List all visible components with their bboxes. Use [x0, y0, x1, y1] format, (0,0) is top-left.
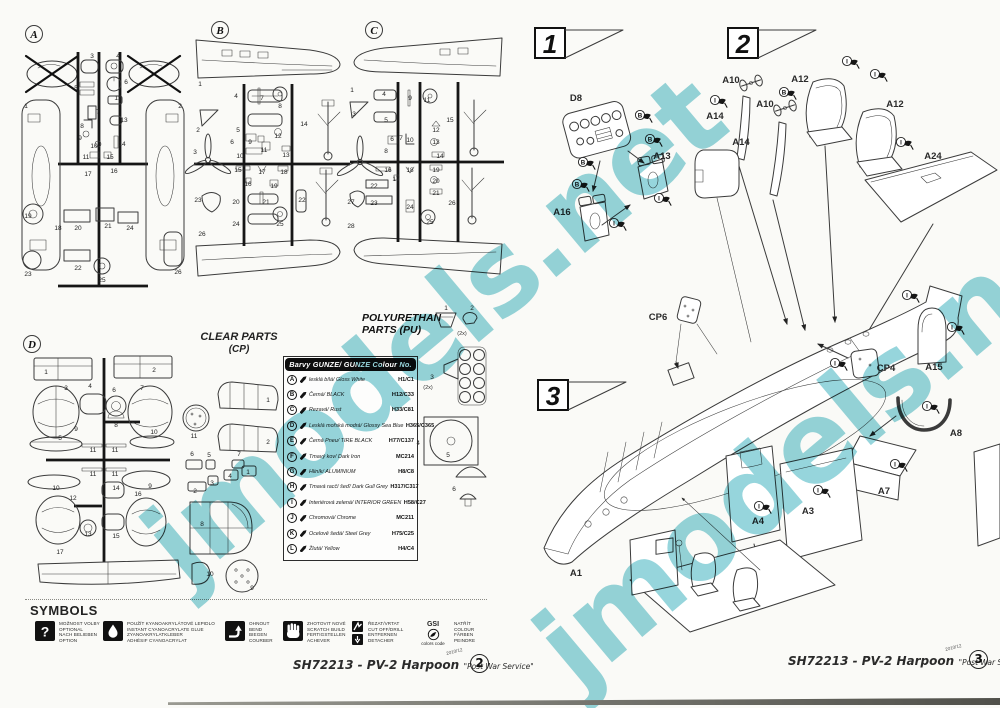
brush-icon: [300, 438, 307, 445]
brush-icon: [300, 469, 307, 476]
color-letter-badge: H: [287, 482, 297, 492]
part-number: 24: [232, 221, 240, 228]
sprue-b-diagram: B: [192, 14, 352, 314]
paint-letter: B: [782, 89, 787, 96]
part-number: 25: [98, 277, 106, 284]
paint-callout: B: [635, 110, 652, 122]
color-row: HTmavá racčí šeď/ Dark Gull GreyH317/C31…: [284, 480, 417, 495]
part-label: A13: [653, 151, 670, 162]
wing-lower: [354, 238, 502, 274]
panel-edge: [974, 444, 1000, 546]
color-row: IInteriérová zelená/ INTERIOR GREENH58/C…: [284, 495, 417, 510]
paint-callout: B: [645, 134, 662, 146]
part-number: 2: [152, 367, 156, 374]
symbol-text: ŘEZAT/VRTATCUT OFF/DRILLENTFERNENDETACHE…: [368, 621, 403, 643]
part-number: 3: [193, 149, 197, 156]
part-number: 17: [56, 549, 64, 556]
part-number: 11: [424, 97, 431, 104]
paint-letter: I: [906, 292, 908, 299]
symbols-title: SYMBOLS: [30, 603, 98, 618]
color-letter-badge: B: [287, 390, 297, 400]
part-number: 6: [112, 387, 116, 394]
part-number: 10: [90, 143, 98, 150]
brush-icon: [300, 499, 307, 506]
sprue-runner: [194, 84, 350, 246]
part-label: A10: [756, 99, 773, 110]
part-number: 19: [432, 167, 440, 174]
cut-icon: [352, 621, 364, 647]
paint-letter: I: [613, 220, 615, 227]
wing-upper: [196, 40, 340, 78]
part-number: 1: [350, 87, 354, 94]
part-number: 3: [90, 53, 94, 60]
paint-callout: B: [572, 179, 589, 191]
color-code: H12/C33: [392, 392, 414, 398]
part-number: 26: [198, 231, 206, 238]
part-number: 12: [274, 133, 282, 140]
sprue-letter: C: [370, 25, 378, 37]
gunze-color-table: Barvy GUNZE/ GUNZE Colour No. Alesklá bí…: [283, 356, 418, 561]
color-code: H1/C1: [398, 377, 414, 383]
paint-letter: I: [658, 195, 660, 202]
color-name: Černá Pneu/ TIRE BLACK: [309, 438, 386, 444]
part-label: A4: [752, 516, 765, 527]
part-number: 25: [276, 221, 284, 228]
kit-code: SH72213 - PV-2 Harpoon: [788, 654, 954, 668]
pilot-seat: [856, 109, 902, 176]
part-number: 8: [278, 103, 282, 110]
paint-letter: B: [638, 112, 643, 119]
page-number: 2: [470, 654, 489, 673]
color-letter-badge: D: [287, 421, 297, 431]
part-number: 1: [24, 103, 28, 110]
color-name: Černá/ BLACK: [309, 392, 389, 398]
sprue-letter: D: [27, 339, 36, 351]
color-code: MC214: [396, 454, 414, 460]
part-number: 4: [382, 91, 386, 98]
part-number: 2: [266, 439, 270, 446]
part-number: 13: [84, 531, 92, 538]
sprue-letter: A: [29, 29, 37, 41]
part-number: 11: [83, 154, 90, 161]
paint-letter: I: [926, 403, 928, 410]
symbol-text: POUŽÍT KYANOAKRYLÁTOVÉ LEPIDLOINSTANT CY…: [127, 621, 215, 643]
rudder-pedal-bracket: [578, 194, 609, 241]
clear-parts-shapes: [183, 382, 278, 592]
symbol-text: NATŘÍTCOLOURFÄRBENPEINDRE: [454, 621, 475, 643]
part-number: 11: [191, 433, 198, 440]
color-name: lesklá bílá/ Gloss White: [309, 377, 396, 383]
color-name: Tmavá racčí šeď/ Dark Gull Grey: [309, 484, 388, 490]
part-number: 11: [90, 447, 97, 454]
control-yoke: [738, 74, 763, 92]
color-table-header: Barvy GUNZE/ GUNZE Colour No.: [285, 358, 416, 371]
clear-parts-diagram: 111265723418109: [180, 352, 295, 602]
page-number: 3: [969, 650, 988, 669]
fuselage-half: [146, 100, 184, 270]
part-number: 9: [74, 426, 78, 433]
part-number: (2x): [457, 331, 467, 337]
part-number: 1: [198, 81, 202, 88]
part-label: A14: [706, 111, 724, 122]
symbol-scratch: ZHOTOVIT NOVÉSCRATCH BUILDFERTIGSTELLENA…: [283, 621, 346, 643]
paint-letter: I: [846, 58, 848, 65]
part-number: 20: [432, 178, 440, 185]
part-number: 13: [432, 139, 440, 146]
part-number: 3: [210, 480, 214, 487]
part-number: 4: [228, 473, 232, 480]
symbol-text: ZHOTOVIT NOVÉSCRATCH BUILDFERTIGSTELLENA…: [307, 621, 346, 643]
part-number: 5: [446, 452, 450, 459]
part-number: 6: [124, 79, 128, 86]
color-row: KOcelově šedá/ Steel GreyH75/C25: [284, 526, 417, 541]
part-number: 14: [118, 141, 126, 148]
part-number: 17: [392, 176, 400, 183]
part-number: 14: [112, 485, 120, 492]
part-label: A14: [732, 137, 750, 148]
paint-callout: I: [922, 401, 939, 413]
color-name: Hliník/ ALUMINIUM: [309, 469, 396, 475]
part-number: 9: [250, 585, 254, 592]
symbol-question: ?MOŽNOST VOLBYOPTIONALNACH BELIEBENOPTIO…: [35, 621, 100, 643]
part-number: 10: [206, 571, 214, 578]
brush-icon: [300, 530, 307, 537]
part-number: 2: [196, 127, 200, 134]
color-letter-badge: J: [287, 513, 297, 523]
color-code: H365/C365: [406, 423, 434, 429]
part-label: D8: [570, 93, 582, 104]
pu-title-line2: PARTS (PU): [362, 324, 422, 336]
part-number: 16: [244, 181, 252, 188]
step-1-flag: 1: [533, 26, 628, 62]
part-number: 13: [282, 152, 290, 159]
footer-left: SH72213 - PV-2 Harpoon "Post War Service…: [293, 656, 489, 684]
part-number: 15: [446, 117, 454, 124]
part-number: 12: [432, 127, 440, 134]
part-number: 3: [64, 385, 68, 392]
paint-letter: I: [758, 503, 760, 510]
part-number: 3: [352, 111, 356, 118]
color-letter-badge: E: [287, 436, 297, 446]
color-letter-badge: C: [287, 405, 297, 415]
part-number: 9: [248, 139, 252, 146]
part-number: 18: [54, 225, 62, 232]
part-number: 16: [110, 168, 118, 175]
paint-callout: I: [870, 69, 887, 81]
part-number: 15: [234, 167, 242, 174]
part-number: 23: [24, 271, 32, 278]
color-letter-badge: G: [287, 467, 297, 477]
landing-gear-leg: [464, 100, 486, 156]
part-number: 5: [207, 452, 211, 459]
part-number: (2x): [423, 385, 433, 391]
part-number: 10: [150, 429, 158, 436]
part-label: A12: [886, 99, 903, 110]
color-row: CRezavá/ RustH33/C81: [284, 403, 417, 418]
paint-letter: I: [834, 360, 836, 367]
svg-text:?: ?: [41, 624, 50, 640]
brush-icon: [300, 376, 307, 383]
part-number: 21: [432, 190, 440, 197]
part-numbers: 1345678910111213141516171819202122232425…: [347, 87, 456, 230]
color-name: Ocelově šedá/ Steel Grey: [309, 531, 389, 537]
small-parts: [23, 60, 182, 274]
sprue-letter: B: [215, 25, 223, 37]
pilot-seat: [806, 79, 852, 146]
part-number: 10: [406, 137, 414, 144]
part-number: 5: [58, 435, 62, 442]
symbol-drop: POUŽÍT KYANOAKRYLÁTOVÉ LEPIDLOINSTANT CY…: [103, 621, 215, 643]
part-number: 17: [84, 171, 92, 178]
paint-letter: I: [900, 139, 902, 146]
part-number: 14: [300, 121, 308, 128]
part-label: A7: [878, 486, 890, 497]
part-numbers: 1234675891011111111109121416131517: [44, 367, 158, 556]
part-number: 11: [112, 471, 119, 478]
part-number: 9: [148, 483, 152, 490]
part-number: 23: [370, 200, 378, 207]
part-number: 7: [399, 135, 403, 142]
part-number: 23: [194, 197, 202, 204]
handle-a8: [870, 398, 950, 436]
scratch-icon: [283, 621, 303, 641]
color-code: H4/C4: [398, 546, 414, 552]
sprue-c-diagram: C: [348, 14, 506, 314]
part-number: 20: [74, 225, 82, 232]
part-label: A10: [722, 75, 739, 86]
part-number: 7: [260, 95, 264, 102]
part-number: 1: [266, 397, 270, 404]
part-number: 8: [114, 422, 118, 429]
instruction-sheet: jmodels.net jmodels.net A: [0, 0, 1000, 708]
part-number: 1: [444, 305, 448, 312]
part-number: 7: [140, 385, 144, 392]
control-column: [770, 122, 786, 196]
part-number: 12: [69, 495, 77, 502]
paint-callout: I: [654, 193, 671, 205]
part-label: A1: [570, 568, 583, 579]
brush-icon: [300, 392, 307, 399]
step-number: 1: [543, 29, 557, 59]
landing-gear-leg: [462, 168, 484, 224]
symbol-gsi: GSIcolors codeNATŘÍTCOLOURFÄRBENPEINDRE: [416, 621, 475, 646]
part-label: A8: [950, 428, 962, 439]
part-label: CP6: [649, 312, 667, 323]
color-name: Žlutá/ Yellow: [309, 546, 396, 552]
propeller: [184, 134, 232, 176]
color-name: Tmavý kov/ Dark Iron: [309, 454, 393, 460]
part-number: 14: [436, 153, 444, 160]
drop-icon: [103, 621, 123, 641]
paint-callout: B: [779, 87, 796, 99]
part-number: 24: [126, 225, 134, 232]
question-icon: ?: [35, 621, 55, 641]
part-number: 5: [74, 85, 78, 92]
part-number: 26: [448, 200, 456, 207]
part-number: 16: [134, 491, 142, 498]
part-number: 21: [104, 223, 112, 230]
color-row: DLesklá mořská modrá/ Glossy Sea BlueH36…: [284, 418, 417, 433]
control-yoke: [772, 99, 797, 117]
sprue-a-diagram: A: [18, 18, 188, 318]
color-name: Rezavá/ Rust: [309, 407, 389, 413]
footer-right: SH72213 - PV-2 Harpoon "Post War Service…: [788, 652, 988, 680]
part-number: 3: [430, 374, 434, 381]
paint-callout: B: [578, 157, 595, 169]
part-number: 6: [390, 136, 394, 143]
color-row: GHliník/ ALUMINIUMH8/C8: [284, 464, 417, 479]
part-number: 6: [230, 139, 234, 146]
color-row: BČerná/ BLACKH12/C33: [284, 387, 417, 402]
symbol-text: OHNOUTBENDBIEGENCOURBER: [249, 621, 273, 643]
color-code: H317/C317: [390, 484, 418, 490]
part-number: 5: [236, 127, 240, 134]
part-number: 1: [246, 469, 250, 476]
color-code: MC211: [396, 515, 414, 521]
brush-icon: [300, 545, 307, 552]
part-number: 1: [44, 369, 48, 376]
part-number: 10: [236, 153, 244, 160]
color-letter-badge: A: [287, 375, 297, 385]
color-letter-badge: F: [287, 452, 297, 462]
symbol-cut: ŘEZAT/VRTATCUT OFF/DRILLENTFERNENDETACHE…: [352, 621, 403, 647]
bend-icon: [225, 621, 245, 641]
step-3-diagram: CP6CP4A15A8A7A3A4A1 IIIIIII: [530, 240, 1000, 665]
part-number: 11: [261, 147, 268, 154]
part-number: 22: [370, 183, 378, 190]
color-name: Interiérová zelená/ INTERIOR GREEN: [309, 500, 401, 506]
part-number: 2: [193, 488, 197, 495]
part-number: 20: [232, 199, 240, 206]
part-number: 19: [270, 183, 278, 190]
brush-icon: [300, 515, 307, 522]
color-row: Alesklá bílá/ Gloss WhiteH1/C1: [284, 372, 417, 387]
part-label: A16: [553, 207, 570, 218]
symbol-text: MOŽNOST VOLBYOPTIONALNACH BELIEBENOPTION: [59, 621, 100, 643]
part-number: 11: [90, 471, 97, 478]
part-number: 8: [200, 521, 204, 528]
wing-upper: [354, 38, 502, 76]
color-code: H33/C81: [392, 407, 414, 413]
pu-title-line1: POLYURETHAN: [362, 312, 442, 324]
color-code: H58/C27: [404, 500, 426, 506]
part-number: 15: [106, 154, 114, 161]
part-number: 6: [452, 486, 456, 493]
sprue-d-diagram: D: [18, 330, 188, 598]
part-number: 7: [237, 451, 241, 458]
part-number: 8: [384, 148, 388, 155]
part-number: 7: [96, 109, 100, 116]
paint-callout: I: [842, 56, 859, 68]
paint-letter: I: [894, 461, 896, 468]
brush-icon: [300, 484, 307, 491]
part-number: 9: [408, 95, 412, 102]
part-number: 24: [406, 204, 414, 211]
crossed-out-part: [128, 56, 180, 92]
part-number: 26: [174, 269, 182, 276]
color-name: Lesklá mořská modrá/ Glossy Sea Blue: [309, 423, 403, 429]
kit-code: SH72213 - PV-2 Harpoon: [293, 658, 459, 672]
symbol-bend: OHNOUTBENDBIEGENCOURBER: [225, 621, 273, 643]
crossed-out-part: [26, 56, 78, 92]
part-number: 28: [347, 223, 355, 230]
divider: [25, 599, 487, 600]
part-number: 22: [298, 197, 306, 204]
part-label: A24: [924, 151, 942, 162]
color-row: JChromová/ ChromeMC211: [284, 511, 417, 526]
color-row: LŽlutá/ YellowH4/C4: [284, 541, 417, 556]
part-numbers: 1234567128139101411151617181920212223242…: [24, 53, 182, 284]
brush-icon: [300, 407, 307, 414]
control-column: [737, 96, 750, 160]
scan-edge: [168, 698, 1000, 705]
part-number: 4: [88, 383, 92, 390]
fuselage-half: [22, 100, 60, 270]
part-label: A3: [802, 506, 814, 517]
wing-lower: [196, 240, 340, 276]
part-number: 5: [384, 117, 388, 124]
part-number: 6: [190, 451, 194, 458]
part-label: CP4: [877, 363, 896, 374]
part-number: 22: [74, 265, 82, 272]
paint-letter: I: [951, 324, 953, 331]
paint-callout: I: [902, 290, 919, 302]
part-number: 12: [114, 95, 122, 102]
part-number: 18: [406, 167, 414, 174]
part-number: 16: [384, 167, 392, 174]
clear-parts-title: CLEAR PARTS: [180, 331, 298, 343]
color-name: Chromová/ Chrome: [309, 515, 394, 521]
color-letter-badge: L: [287, 544, 297, 554]
part-label: A15: [925, 362, 943, 373]
landing-gear-leg: [316, 168, 338, 226]
paint-letter: I: [817, 487, 819, 494]
pu-shapes: [424, 312, 486, 506]
color-code: H8/C8: [398, 469, 414, 475]
color-letter-badge: I: [287, 498, 297, 508]
part-number: 2: [178, 103, 182, 110]
part-number: 2: [470, 305, 474, 312]
color-code: H75/C25: [392, 531, 414, 537]
brush-icon: [300, 453, 307, 460]
paint-callout: I: [896, 137, 913, 149]
sprue-runner: [350, 82, 504, 242]
bulkhead-a15: [918, 308, 946, 364]
paint-letter: B: [648, 136, 653, 143]
color-letter-badge: K: [287, 529, 297, 539]
color-table-rows: Alesklá bílá/ Gloss WhiteH1/C1BČerná/ BL…: [284, 372, 417, 557]
part-number: 18: [280, 169, 288, 176]
clear-part-cp6: [676, 296, 717, 368]
part-number: 4: [234, 93, 238, 100]
part-number: 13: [120, 117, 128, 124]
part-number: 4: [116, 53, 120, 60]
part-label: A12: [791, 74, 808, 85]
part-number: 21: [262, 199, 270, 206]
instrument-panel: [561, 100, 633, 160]
paint-letter: I: [714, 97, 716, 104]
part-number: 15: [112, 533, 120, 540]
part-number: 9: [78, 135, 82, 142]
gsi-colors-icon: GSIcolors code: [416, 621, 450, 646]
part-number: 8: [80, 123, 84, 130]
part-number: 10: [52, 485, 60, 492]
landing-gear-leg: [318, 100, 340, 160]
part-number: 11: [112, 447, 119, 454]
paint-letter: I: [874, 71, 876, 78]
color-row: FTmavý kov/ Dark IronMC214: [284, 449, 417, 464]
paint-letter: B: [575, 181, 580, 188]
